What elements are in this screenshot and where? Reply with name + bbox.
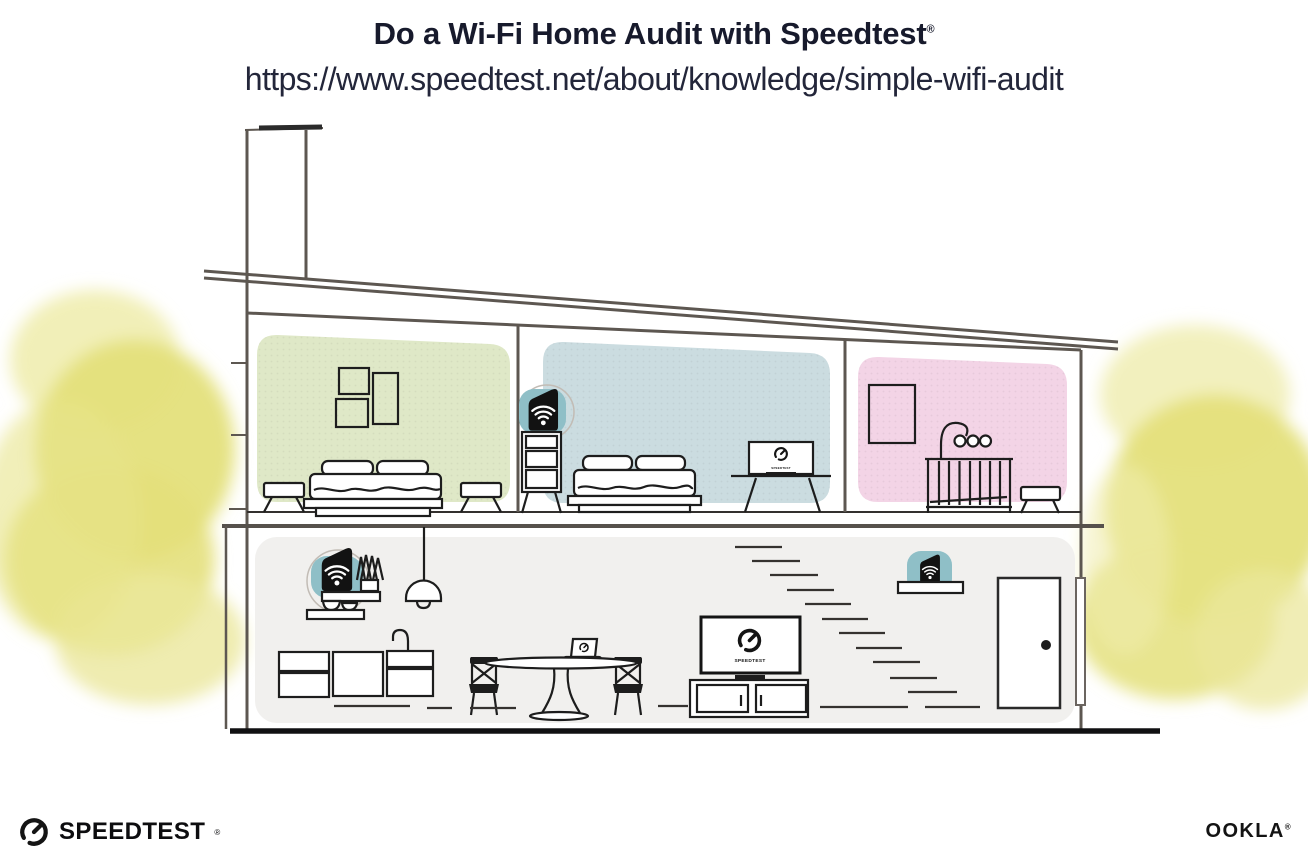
- dining-table-top: [485, 658, 637, 669]
- article-url: https://www.speedtest.net/about/knowledg…: [0, 61, 1308, 98]
- living-tv-label: SPEEDTEST: [734, 658, 765, 664]
- wall-shelf-top: [322, 592, 380, 601]
- page-header: Do a Wi-Fi Home Audit with Speedtest® ht…: [0, 16, 1308, 98]
- title-registered-mark: ®: [926, 24, 934, 36]
- bed-platform: [568, 496, 701, 505]
- bed-base: [579, 505, 690, 512]
- nightstand-top: [461, 483, 501, 497]
- tv-screen: [701, 617, 800, 673]
- page-title: Do a Wi-Fi Home Audit with Speedtest®: [0, 16, 1308, 52]
- pillow: [583, 456, 632, 470]
- speedtest-wordmark: SPEEDTEST: [59, 818, 205, 846]
- bed: [304, 461, 442, 516]
- ookla-logo: OOKLA®: [1205, 820, 1292, 843]
- wall-shelf: [898, 582, 963, 593]
- door-panel: [998, 578, 1060, 708]
- cabinet-door: [333, 652, 383, 696]
- speedtest-registered-mark: ®: [214, 828, 220, 837]
- house-illustration: SPEEDTEST: [0, 0, 1308, 861]
- table-base: [530, 712, 588, 720]
- door-knob: [1041, 640, 1051, 650]
- mobile-toy: [980, 436, 991, 447]
- pillow: [636, 456, 685, 470]
- stool-top: [1021, 487, 1060, 500]
- bedroom-tv-label: SPEEDTEST: [771, 466, 790, 470]
- dresser-body: [522, 432, 561, 492]
- speedtest-logo: SPEEDTEST®: [18, 816, 220, 848]
- speedtest-gauge-icon: [18, 816, 50, 848]
- ookla-registered-mark: ®: [1285, 822, 1292, 831]
- foliage-left: [0, 290, 245, 705]
- bowl: [323, 601, 340, 610]
- plant-pot: [361, 580, 378, 591]
- mobile-toy: [955, 436, 966, 447]
- nightstand-top: [264, 483, 304, 497]
- bed-base: [316, 508, 430, 516]
- nightstand-right: [461, 483, 501, 512]
- mattress: [574, 470, 695, 496]
- door-sidelight: [1076, 578, 1085, 705]
- dresser-leg: [522, 492, 528, 513]
- cabinet-drawer: [279, 652, 329, 671]
- nightstand-left: [264, 483, 304, 512]
- cabinet-drawer: [279, 673, 329, 697]
- mobile-toy: [968, 436, 979, 447]
- tv-base: [735, 675, 765, 679]
- chimney: [249, 130, 305, 275]
- sink-drawer: [387, 651, 433, 667]
- title-text: Do a Wi-Fi Home Audit with Speedtest: [374, 16, 927, 51]
- mattress: [310, 474, 441, 499]
- wall-shelf-bottom: [307, 610, 364, 619]
- sink-cabinet: [387, 669, 433, 696]
- nursery-stool: [1021, 487, 1060, 513]
- chimney-cap: [259, 127, 322, 128]
- foliage-right: [1075, 325, 1308, 710]
- ookla-wordmark: OOKLA: [1205, 820, 1284, 842]
- bed-platform: [304, 499, 442, 508]
- living-tv: SPEEDTEST: [690, 617, 808, 717]
